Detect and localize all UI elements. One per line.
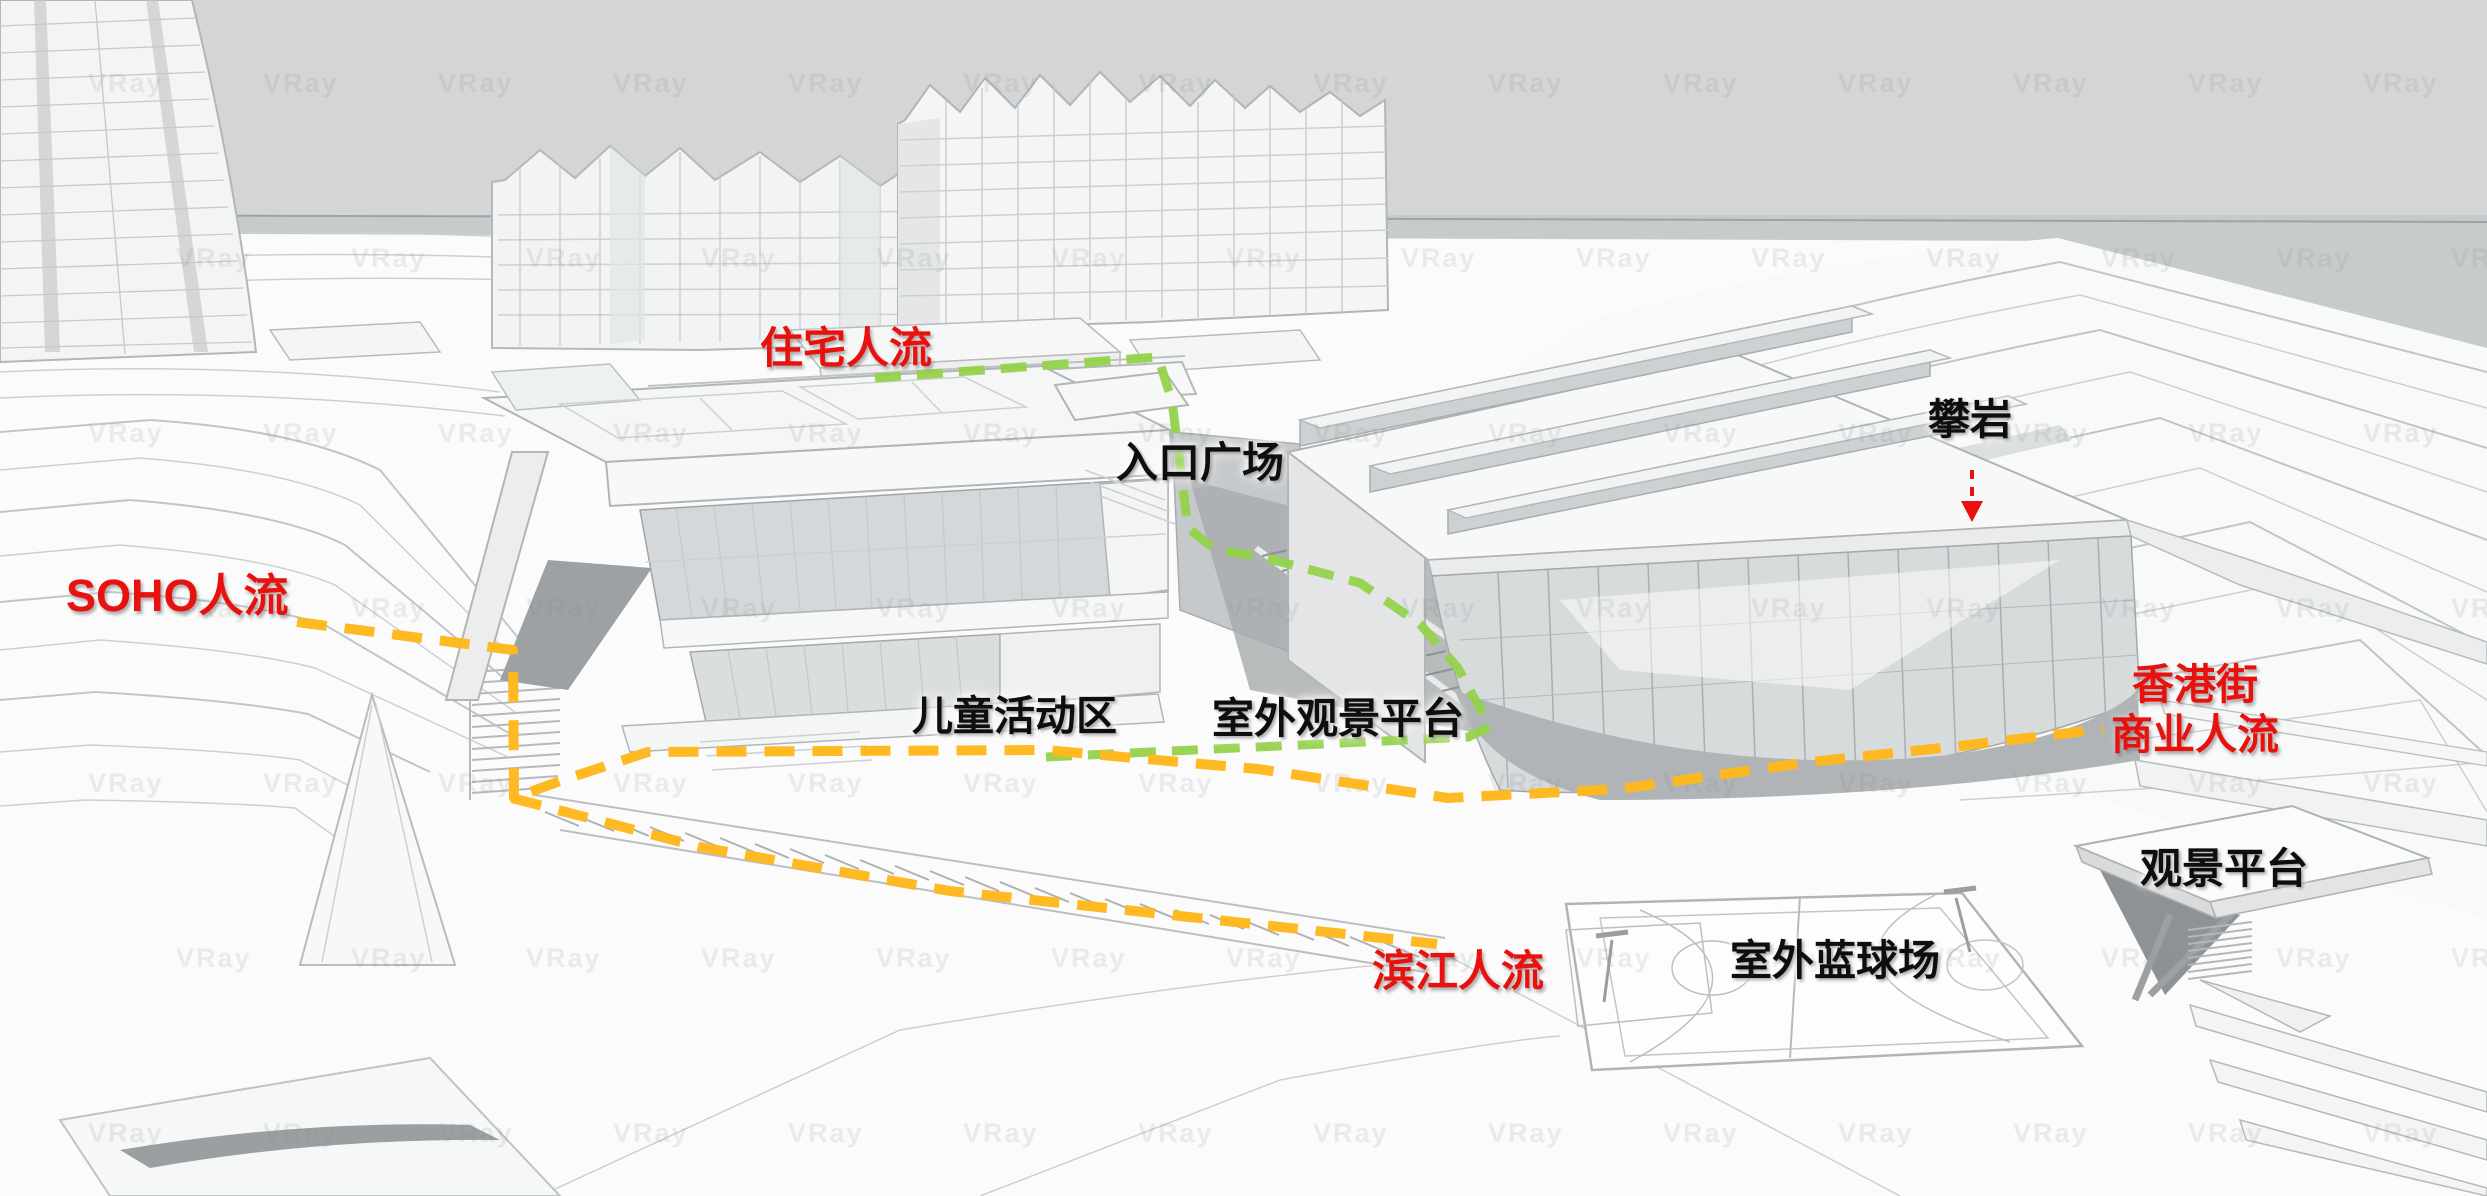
vray-watermark-text: VRay xyxy=(701,943,777,973)
vray-watermark-text: VRay xyxy=(351,243,427,273)
vray-watermark-text: VRay xyxy=(2451,593,2487,623)
vray-watermark-text: VRay xyxy=(1838,1118,1914,1148)
vray-watermark-text: VRay xyxy=(788,1118,864,1148)
vray-watermark-text: VRay xyxy=(88,418,164,448)
vray-watermark-text: VRay xyxy=(1051,243,1127,273)
vray-watermark-text: VRay xyxy=(876,593,952,623)
vray-watermark-text: VRay xyxy=(2101,593,2177,623)
vray-watermark-text: VRay xyxy=(701,243,777,273)
vray-watermark-text: VRay xyxy=(963,768,1039,798)
vray-watermark-text: VRay xyxy=(526,593,602,623)
site-massing-rendering: VRayVRayVRayVRayVRayVRayVRayVRayVRayVRay… xyxy=(0,0,2487,1196)
vray-watermark-text: VRay xyxy=(1313,68,1389,98)
vray-watermark-text: VRay xyxy=(1751,243,1827,273)
vray-watermark-text: VRay xyxy=(438,418,514,448)
vray-watermark-text: VRay xyxy=(1313,1118,1389,1148)
vray-watermark-text: VRay xyxy=(2101,243,2177,273)
vray-watermark-text: VRay xyxy=(88,1118,164,1148)
vray-watermark-text: VRay xyxy=(788,768,864,798)
vray-watermark-text: VRay xyxy=(1751,593,1827,623)
vray-watermark-text: VRay xyxy=(1838,768,1914,798)
vray-watermark-text: VRay xyxy=(1138,68,1214,98)
waterfront-terraces xyxy=(2190,980,2487,1196)
label-viewing-platform: 观景平台 xyxy=(2140,847,2308,891)
label-hk-street-commercial-flow: 香港街 商业人流 xyxy=(2100,660,2290,759)
label-rock-climbing: 攀岩 xyxy=(1928,398,2012,442)
vray-watermark-text: VRay xyxy=(2363,418,2439,448)
vray-watermark-text: VRay xyxy=(263,418,339,448)
vray-watermark-text: VRay xyxy=(526,943,602,973)
vray-watermark-text: VRay xyxy=(876,943,952,973)
vray-watermark-text: VRay xyxy=(2451,243,2487,273)
vray-watermark-text: VRay xyxy=(1488,68,1564,98)
label-hk-street-line2: 商业人流 xyxy=(2100,710,2290,760)
vray-watermark-text: VRay xyxy=(263,768,339,798)
vray-watermark-text: VRay xyxy=(1138,1118,1214,1148)
vray-watermark-text: VRay xyxy=(1051,593,1127,623)
vray-watermark-text: VRay xyxy=(2188,418,2264,448)
vray-watermark-text: VRay xyxy=(1226,593,1302,623)
vray-watermark-text: VRay xyxy=(438,68,514,98)
vray-watermark-text: VRay xyxy=(963,1118,1039,1148)
label-residential-flow: 住宅人流 xyxy=(760,327,932,372)
vray-watermark-text: VRay xyxy=(1488,1118,1564,1148)
vray-watermark-text: VRay xyxy=(1926,593,2002,623)
label-entrance-plaza: 入口广场 xyxy=(1116,441,1284,485)
vray-watermark-text: VRay xyxy=(351,593,427,623)
vray-watermark-text: VRay xyxy=(176,943,252,973)
vray-watermark-text: VRay xyxy=(263,68,339,98)
label-riverside-flow: 滨江人流 xyxy=(1372,950,1544,995)
vray-watermark-text: VRay xyxy=(88,68,164,98)
vray-watermark-text: VRay xyxy=(1401,243,1477,273)
vray-watermark-text: VRay xyxy=(963,418,1039,448)
vray-watermark-text: VRay xyxy=(351,943,427,973)
vray-watermark-text: VRay xyxy=(2363,768,2439,798)
vray-watermark-text: VRay xyxy=(788,418,864,448)
vray-watermark-text: VRay xyxy=(701,593,777,623)
vray-watermark-text: VRay xyxy=(613,768,689,798)
vray-watermark-text: VRay xyxy=(1576,593,1652,623)
vray-watermark-text: VRay xyxy=(1313,418,1389,448)
vray-watermark-text: VRay xyxy=(2101,943,2177,973)
label-outdoor-viewing-platform: 室外观景平台 xyxy=(1212,697,1464,741)
vray-watermark-text: VRay xyxy=(788,68,864,98)
vray-watermark-text: VRay xyxy=(1926,243,2002,273)
vray-watermark-text: VRay xyxy=(613,1118,689,1148)
vray-watermark-text: VRay xyxy=(438,768,514,798)
vray-watermark-text: VRay xyxy=(2188,768,2264,798)
vray-watermark-text: VRay xyxy=(613,68,689,98)
vray-watermark-text: VRay xyxy=(1051,943,1127,973)
vray-watermark-text: VRay xyxy=(1838,418,1914,448)
vray-watermark-text: VRay xyxy=(1138,768,1214,798)
vray-watermark-text: VRay xyxy=(963,68,1039,98)
riverside-flow-line xyxy=(512,798,1437,944)
vray-watermark-text: VRay xyxy=(263,1118,339,1148)
vray-watermark-text: VRay xyxy=(1838,68,1914,98)
vray-watermark-text: VRay xyxy=(1401,593,1477,623)
label-children-activity-area: 儿童活动区 xyxy=(912,695,1117,738)
label-outdoor-basketball-court: 室外蓝球场 xyxy=(1730,939,1940,983)
vray-watermark-text: VRay xyxy=(2013,1118,2089,1148)
vray-watermark-text: VRay xyxy=(1663,418,1739,448)
vray-watermark-text: VRay xyxy=(1663,68,1739,98)
vray-watermark-text: VRay xyxy=(2276,943,2352,973)
residential-towers-center xyxy=(898,72,1388,330)
vray-watermark-text: VRay xyxy=(438,1118,514,1148)
vray-watermark-text: VRay xyxy=(1226,243,1302,273)
vray-watermark-text: VRay xyxy=(2276,593,2352,623)
vray-watermark-text: VRay xyxy=(1488,418,1564,448)
vray-watermark-text: VRay xyxy=(1663,1118,1739,1148)
vray-watermark-text: VRay xyxy=(2276,243,2352,273)
vray-watermark-text: VRay xyxy=(1576,243,1652,273)
terraced-hillside-left xyxy=(0,420,520,965)
vray-watermark-text: VRay xyxy=(613,418,689,448)
label-soho-flow: SOHO人流 xyxy=(66,572,289,619)
vray-watermark-text: VRay xyxy=(2451,943,2487,973)
vray-watermark-text: VRay xyxy=(2188,1118,2264,1148)
vray-watermark-text: VRay xyxy=(1226,943,1302,973)
vray-watermark-text: VRay xyxy=(176,243,252,273)
vray-watermark-text: VRay xyxy=(526,243,602,273)
vray-watermark-text: VRay xyxy=(2013,68,2089,98)
vray-watermark-text: VRay xyxy=(1576,943,1652,973)
vray-watermark-text: VRay xyxy=(2363,1118,2439,1148)
vray-watermark-text: VRay xyxy=(2363,68,2439,98)
vray-watermark-text: VRay xyxy=(2188,68,2264,98)
architectural-circulation-diagram: VRayVRayVRayVRayVRayVRayVRayVRayVRayVRay… xyxy=(0,0,2487,1196)
grand-stair xyxy=(535,795,1445,972)
vray-watermark-text: VRay xyxy=(2013,418,2089,448)
label-hk-street-line1: 香港街 xyxy=(2100,660,2290,710)
vray-watermark-text: VRay xyxy=(88,768,164,798)
vray-watermark-text: VRay xyxy=(2013,768,2089,798)
vray-watermark-text: VRay xyxy=(876,243,952,273)
